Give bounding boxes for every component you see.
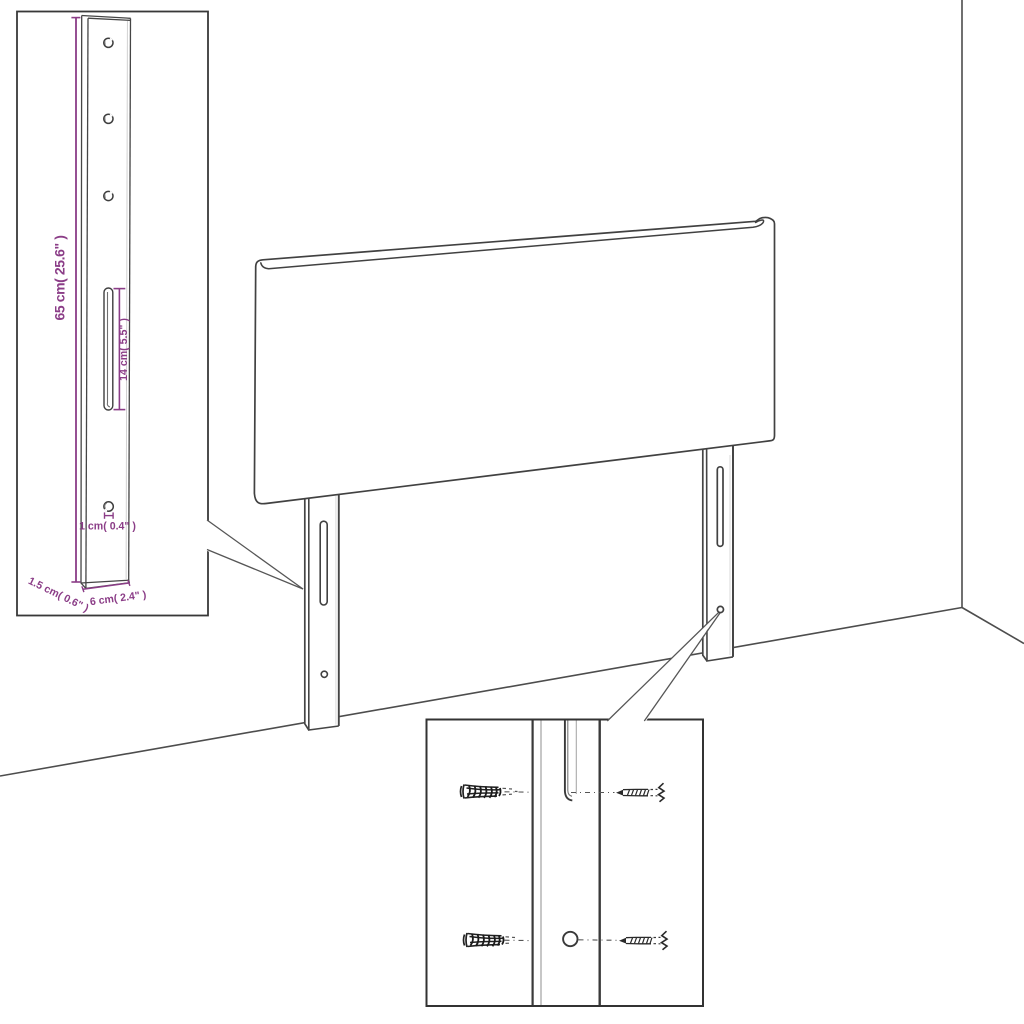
svg-text:1 cm( 0.4" ): 1 cm( 0.4" ) xyxy=(79,521,136,533)
svg-text:14 cm( 5.5" ): 14 cm( 5.5" ) xyxy=(118,318,130,381)
svg-text:65 cm( 25.6" ): 65 cm( 25.6" ) xyxy=(52,235,68,320)
